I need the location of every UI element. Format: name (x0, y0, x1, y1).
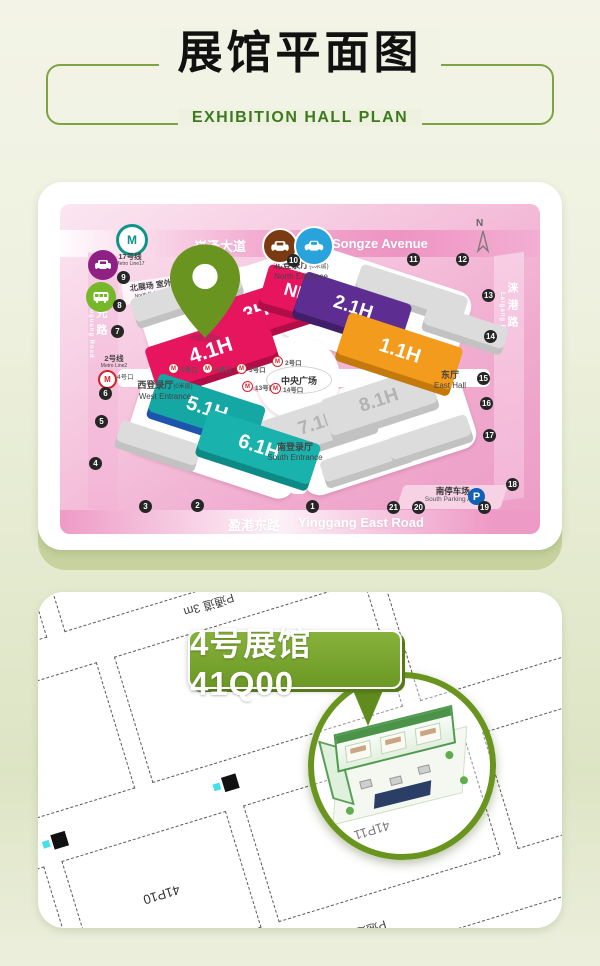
booth-render (316, 698, 478, 829)
location-pin-icon (170, 244, 240, 342)
page-title: 展馆平面图 (0, 30, 600, 75)
booth-41P10: 41P10 (61, 811, 261, 928)
gate-5: 5 (95, 415, 108, 428)
gate-3: 3 (139, 500, 152, 513)
utility-mark (42, 840, 51, 849)
gate-17: 17 (483, 429, 496, 442)
gate-7: 7 (111, 325, 124, 338)
booth-41P00: 41P00 (439, 888, 562, 928)
gate-14: 14 (484, 330, 497, 343)
gate-2: 2 (191, 499, 204, 512)
page-subtitle: EXHIBITION HALL PLAN (0, 109, 600, 127)
gate-9: 9 (117, 271, 130, 284)
gate-1: 1 (306, 500, 319, 513)
gate-8: 8 (113, 299, 126, 312)
gates-layer: 123456789101112131415161718192021 (60, 204, 540, 534)
site-map: 崧泽大道 Songze Avenue 盈港东路 Yinggang East Ro… (60, 204, 540, 534)
gate-10: 10 (287, 254, 300, 267)
gate-4: 4 (89, 457, 102, 470)
gate-11: 11 (407, 253, 420, 266)
booth-callout: 4号展馆41Q00 (188, 630, 402, 689)
gate-15: 15 (477, 372, 490, 385)
gate-21: 21 (387, 501, 400, 514)
gate-13: 13 (482, 289, 495, 302)
gate-6: 6 (99, 387, 112, 400)
pillar-mark (221, 773, 240, 792)
gate-16: 16 (480, 397, 493, 410)
gate-19: 19 (478, 501, 491, 514)
overview-map-card: 崧泽大道 Songze Avenue 盈港东路 Yinggang East Ro… (38, 182, 562, 570)
utility-mark (213, 783, 222, 792)
aisle-label: P通道 3m (334, 916, 389, 928)
gate-20: 20 (412, 501, 425, 514)
gate-12: 12 (456, 253, 469, 266)
floorplan-card: 41O0041P0041P0141Q0041Q01 Linuo41O1041P1… (38, 592, 562, 928)
pillar-mark (50, 831, 69, 850)
gate-18: 18 (506, 478, 519, 491)
